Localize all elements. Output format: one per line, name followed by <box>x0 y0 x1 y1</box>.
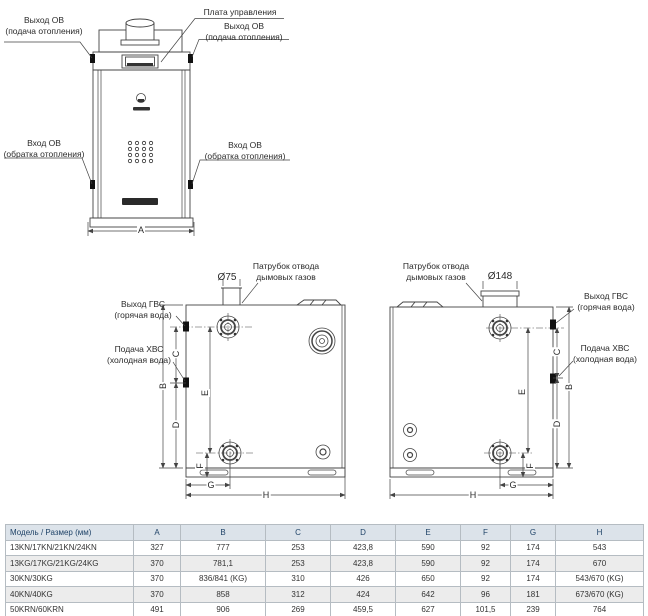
label-dhw-outlet-small: Выход ГВС (горячая вода) <box>106 299 180 321</box>
dim-letter-d: D <box>552 420 562 429</box>
header-model: Модель / Размер (мм) <box>6 525 134 541</box>
sight-glass <box>309 328 335 354</box>
header-dim-c: C <box>266 525 331 541</box>
dim-cell: 310 <box>266 571 331 587</box>
dim-cell: 96 <box>461 587 511 603</box>
label-control-board: Плата управления <box>192 7 288 18</box>
dim-letter-c: C <box>171 350 181 359</box>
header-dim-a: A <box>134 525 181 541</box>
side-large-leaders <box>466 283 574 376</box>
dim-cell: 92 <box>461 571 511 587</box>
label-heating-inlet-right: Вход ОВ (обратка отопления) <box>198 140 292 162</box>
dim-cell: 239 <box>511 602 556 616</box>
dim-cell: 650 <box>396 571 461 587</box>
boiler-drawing-linework <box>0 0 648 520</box>
table-row: 50KRN/60KRN 491 906 269 459,5 627 101,5 … <box>6 602 644 616</box>
dim-letter-a: A <box>137 225 145 235</box>
dim-cell: 777 <box>181 540 266 556</box>
dim-cell: 92 <box>461 540 511 556</box>
dim-letter-e: E <box>200 389 210 397</box>
header-dim-f: F <box>461 525 511 541</box>
header-dim-b: B <box>181 525 266 541</box>
dim-letter-e: E <box>517 388 527 396</box>
model-cell: 30KN/30KG <box>6 571 134 587</box>
header-dim-d: D <box>331 525 396 541</box>
dim-cell: 370 <box>134 587 181 603</box>
dim-cell: 181 <box>511 587 556 603</box>
model-cell: 40KN/40KG <box>6 587 134 603</box>
dim-letter-b: B <box>564 383 574 391</box>
dim-cell: 269 <box>266 602 331 616</box>
label-heating-inlet-left: Вход ОВ (обратка отопления) <box>0 138 88 160</box>
dim-cell: 101,5 <box>461 602 511 616</box>
label-dhw-outlet-large: Выход ГВС (горячая вода) <box>568 291 644 313</box>
table-row: 13KN/17KN/21KN/24KN 327 777 253 423,8 59… <box>6 540 644 556</box>
dim-cell: 906 <box>181 602 266 616</box>
dim-cell: 670 <box>556 556 644 572</box>
dim-cell: 370 <box>134 556 181 572</box>
dim-cell: 543 <box>556 540 644 556</box>
model-cell: 13KG/17KG/21KG/24KG <box>6 556 134 572</box>
dim-cell: 642 <box>396 587 461 603</box>
dim-letter-d: D <box>171 421 181 430</box>
side-fittings <box>404 424 417 462</box>
header-dim-e: E <box>396 525 461 541</box>
dim-cell: 327 <box>134 540 181 556</box>
dim-cell: 459,5 <box>331 602 396 616</box>
dim-cell: 590 <box>396 540 461 556</box>
dimensions-table: Модель / Размер (мм) A B C D E F G H 13K… <box>5 524 644 616</box>
label-cold-water-inlet-small: Подача ХВС (холодная вода) <box>98 344 180 366</box>
dim-cell: 253 <box>266 556 331 572</box>
brand-emblem <box>133 94 150 111</box>
flue-diameter-75: Ø75 <box>209 272 245 283</box>
dim-letter-c: C <box>552 348 562 357</box>
dim-cell: 627 <box>396 602 461 616</box>
front-view-drawing <box>4 19 290 237</box>
label-flue-outlet-large: Патрубок отвода дымовых газов <box>396 261 476 283</box>
centerlines <box>170 313 254 467</box>
label-flue-outlet-small: Патрубок отвода дымовых газов <box>246 261 326 283</box>
dim-cell: 673/670 (KG) <box>556 587 644 603</box>
dim-cell: 836/841 (KG) <box>181 571 266 587</box>
dim-cell: 423,8 <box>331 540 396 556</box>
dim-cell: 174 <box>511 556 556 572</box>
dim-cell: 312 <box>266 587 331 603</box>
brand-logo-bar <box>122 198 158 205</box>
dim-cell: 423,8 <box>331 556 396 572</box>
label-heating-outlet-right: Выход ОВ (подача отопления) <box>196 21 292 43</box>
dim-letter-g: G <box>206 480 215 490</box>
dim-cell: 253 <box>266 540 331 556</box>
boiler-dimensions-page: Выход ОВ (подача отопления) Плата управл… <box>0 0 648 616</box>
table-row: 40KN/40KG 370 858 312 424 642 96 181 673… <box>6 587 644 603</box>
dim-cell: 590 <box>396 556 461 572</box>
table-row: 30KN/30KG 370 836/841 (KG) 310 426 650 9… <box>6 571 644 587</box>
model-cell: 50KRN/60KRN <box>6 602 134 616</box>
dim-letter-f: F <box>525 462 535 470</box>
dim-cell: 92 <box>461 556 511 572</box>
dim-cell: 174 <box>511 540 556 556</box>
flue-diameter-148: Ø148 <box>479 271 521 282</box>
dim-cell: 491 <box>134 602 181 616</box>
dim-cell: 426 <box>331 571 396 587</box>
side-view-small-drawing <box>159 279 345 499</box>
model-cell: 13KN/17KN/21KN/24KN <box>6 540 134 556</box>
dim-cell: 370 <box>134 571 181 587</box>
table-header-row: Модель / Размер (мм) A B C D E F G H <box>6 525 644 541</box>
dim-cell: 781,1 <box>181 556 266 572</box>
header-dim-h: H <box>556 525 644 541</box>
dim-cell: 424 <box>331 587 396 603</box>
dim-letter-h: H <box>262 490 271 500</box>
label-cold-water-inlet-large: Подача ХВС (холодная вода) <box>562 343 648 365</box>
table-header: Модель / Размер (мм) A B C D E F G H <box>6 525 644 541</box>
dim-letter-f: F <box>195 462 205 470</box>
dim-letter-b: B <box>158 382 168 390</box>
vent-holes <box>128 141 152 162</box>
dim-cell: 543/670 (KG) <box>556 571 644 587</box>
side-view-large-drawing <box>390 281 574 499</box>
pipe-stubs <box>90 54 193 189</box>
header-dim-g: G <box>511 525 556 541</box>
dim-cell: 858 <box>181 587 266 603</box>
drain-fitting <box>316 445 330 459</box>
dim-cell: 174 <box>511 571 556 587</box>
table-row: 13KG/17KG/21KG/24KG 370 781,1 253 423,8 … <box>6 556 644 572</box>
dim-letter-h: H <box>469 490 478 500</box>
label-heating-outlet-left: Выход ОВ (подача отопления) <box>2 15 86 37</box>
dim-letter-g: G <box>508 480 517 490</box>
dim-cell: 764 <box>556 602 644 616</box>
